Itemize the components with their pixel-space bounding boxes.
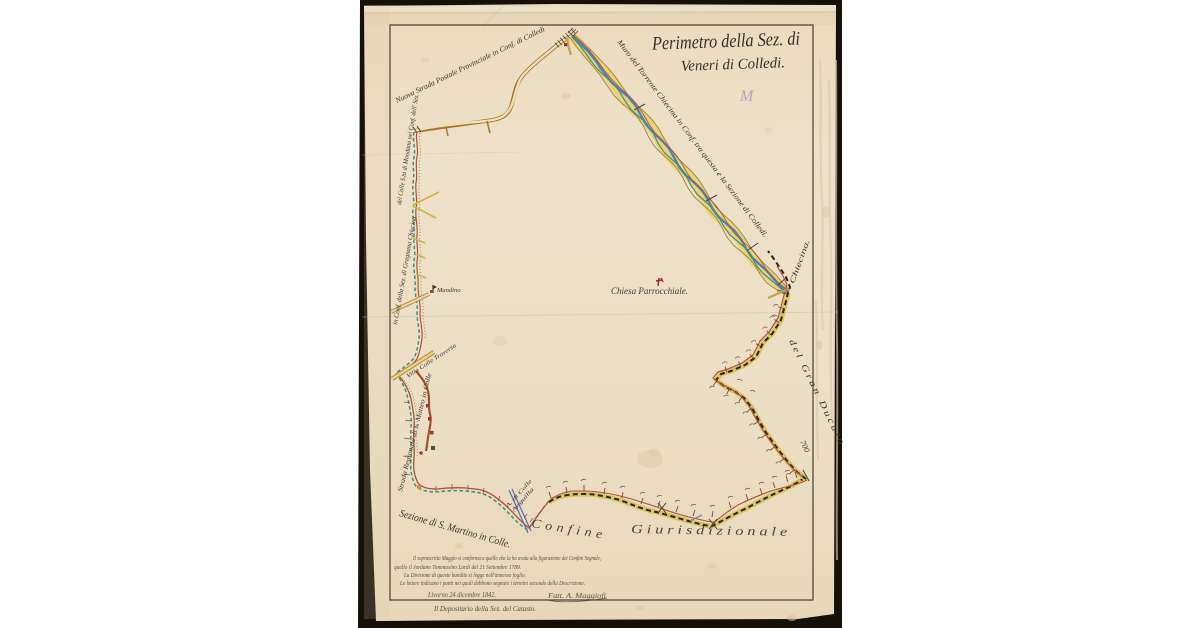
svg-text:M: M — [739, 88, 755, 105]
svg-text:La Divisione di queste bandite: La Divisione di queste bandite si legge … — [403, 572, 526, 579]
svg-text:Il Depositario della Sez. del: Il Depositario della Sez. del Catasto. — [433, 605, 536, 613]
svg-text:Livorno 24 dicembre 1842.: Livorno 24 dicembre 1842. — [427, 591, 496, 599]
svg-text:Giurisdizionale: Giurisdizionale — [631, 522, 791, 539]
svg-text:Fatt. A. Maggiofi: Fatt. A. Maggiofi — [547, 592, 606, 600]
svg-text:Il soprascritto Maggio si conf: Il soprascritto Maggio si conforma a que… — [412, 555, 601, 562]
svg-text:Le lettere indicano i punti ne: Le lettere indicano i punti nei quali de… — [399, 580, 585, 587]
svg-text:Chiesa Parrocchiale.: Chiesa Parrocchiale. — [611, 286, 688, 296]
svg-text:Mandino: Mandino — [436, 287, 461, 294]
svg-text:quello il Jordano Tommasino Lo: quello il Jordano Tommasino Lordi del 21… — [394, 564, 521, 571]
